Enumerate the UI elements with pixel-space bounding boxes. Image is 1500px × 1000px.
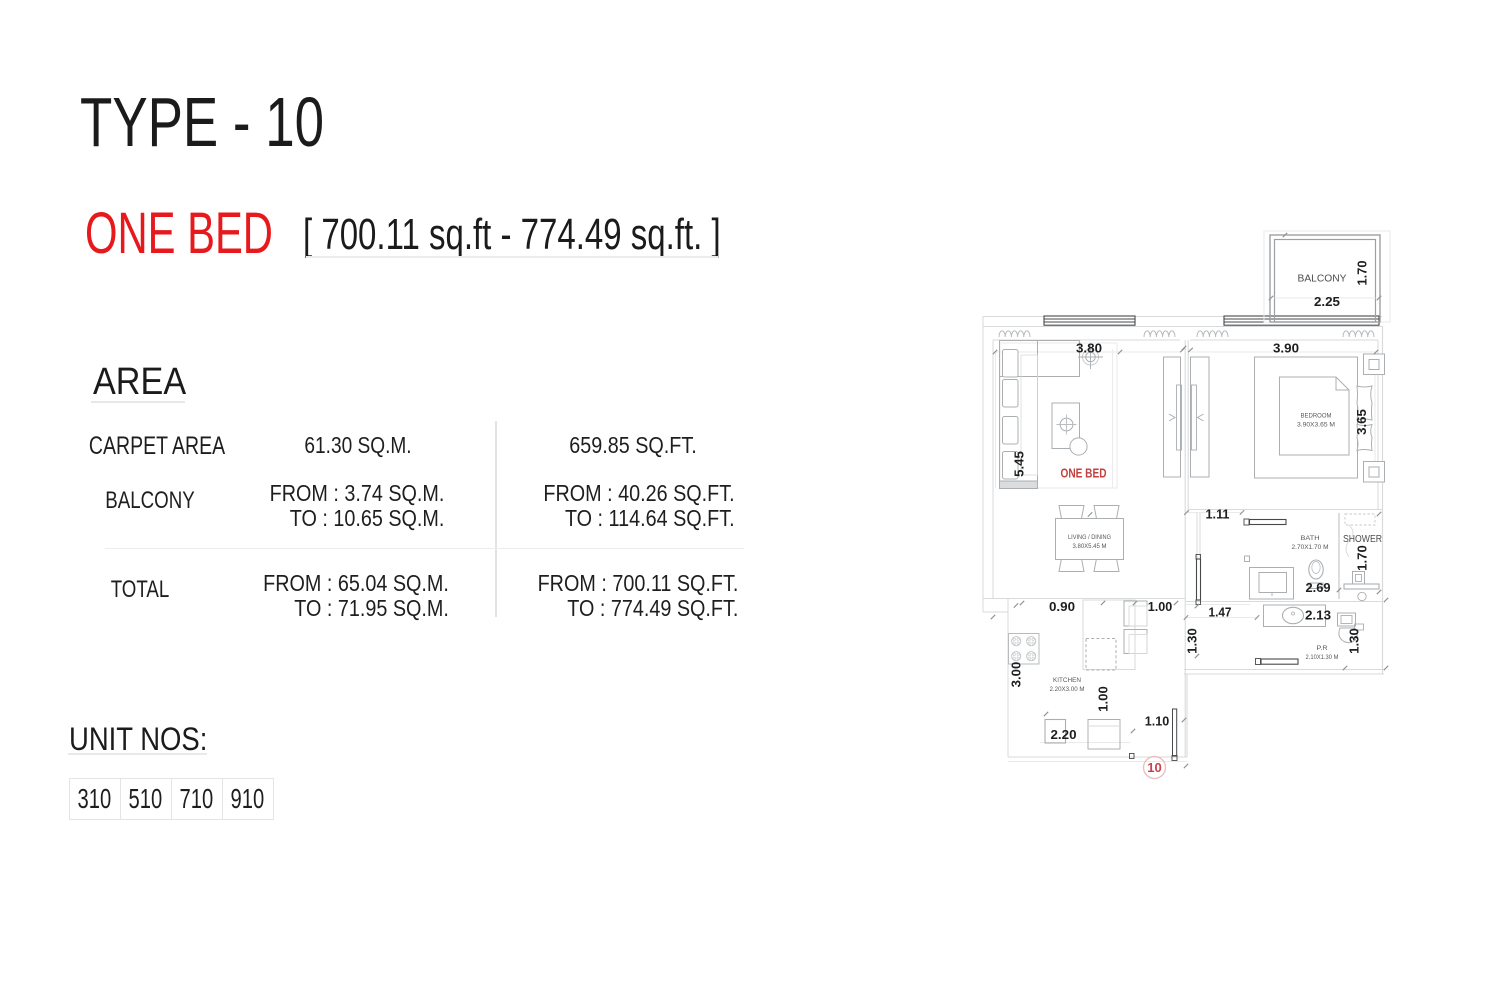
- svg-text:3.90X3.65 M: 3.90X3.65 M: [1297, 422, 1335, 429]
- svg-text:P.R: P.R: [1317, 645, 1328, 652]
- svg-text:3.65: 3.65: [1354, 409, 1369, 435]
- svg-text:0.90: 0.90: [1049, 599, 1075, 614]
- svg-text:BALCONY: BALCONY: [1298, 274, 1347, 285]
- svg-text:1.10: 1.10: [1145, 714, 1170, 729]
- svg-text:1.11: 1.11: [1206, 507, 1230, 522]
- svg-text:5.45: 5.45: [1012, 451, 1027, 477]
- svg-text:ONE BED: ONE BED: [1061, 466, 1107, 481]
- svg-text:KITCHEN: KITCHEN: [1053, 677, 1081, 684]
- svg-text:3.80X5.45 M: 3.80X5.45 M: [1073, 543, 1107, 550]
- svg-text:1.70: 1.70: [1355, 261, 1370, 286]
- svg-text:3.00: 3.00: [1009, 662, 1024, 688]
- svg-text:1.30: 1.30: [1347, 628, 1362, 654]
- svg-text:2.70X1.70 M: 2.70X1.70 M: [1292, 544, 1329, 551]
- svg-text:3.80: 3.80: [1076, 341, 1102, 356]
- svg-text:2.25: 2.25: [1314, 294, 1340, 309]
- svg-text:LIVING / DINING: LIVING / DINING: [1068, 534, 1111, 541]
- svg-text:BEDROOM: BEDROOM: [1301, 413, 1332, 420]
- svg-text:1.00: 1.00: [1148, 599, 1173, 614]
- svg-text:1.70: 1.70: [1355, 545, 1370, 571]
- svg-text:2.13: 2.13: [1305, 608, 1331, 623]
- svg-text:1.00: 1.00: [1096, 686, 1111, 712]
- svg-text:2.20X3.00 M: 2.20X3.00 M: [1050, 686, 1085, 693]
- svg-text:1.30: 1.30: [1185, 628, 1200, 654]
- svg-text:2.20: 2.20: [1051, 727, 1077, 742]
- svg-text:SHOWER: SHOWER: [1343, 534, 1382, 545]
- svg-text:1.47: 1.47: [1209, 605, 1232, 620]
- svg-text:BATH: BATH: [1301, 535, 1320, 542]
- svg-text:3.90: 3.90: [1273, 341, 1299, 356]
- svg-text:2.69: 2.69: [1306, 580, 1331, 595]
- svg-text:2.10X1.30 M: 2.10X1.30 M: [1306, 654, 1339, 661]
- svg-text:10: 10: [1147, 760, 1161, 775]
